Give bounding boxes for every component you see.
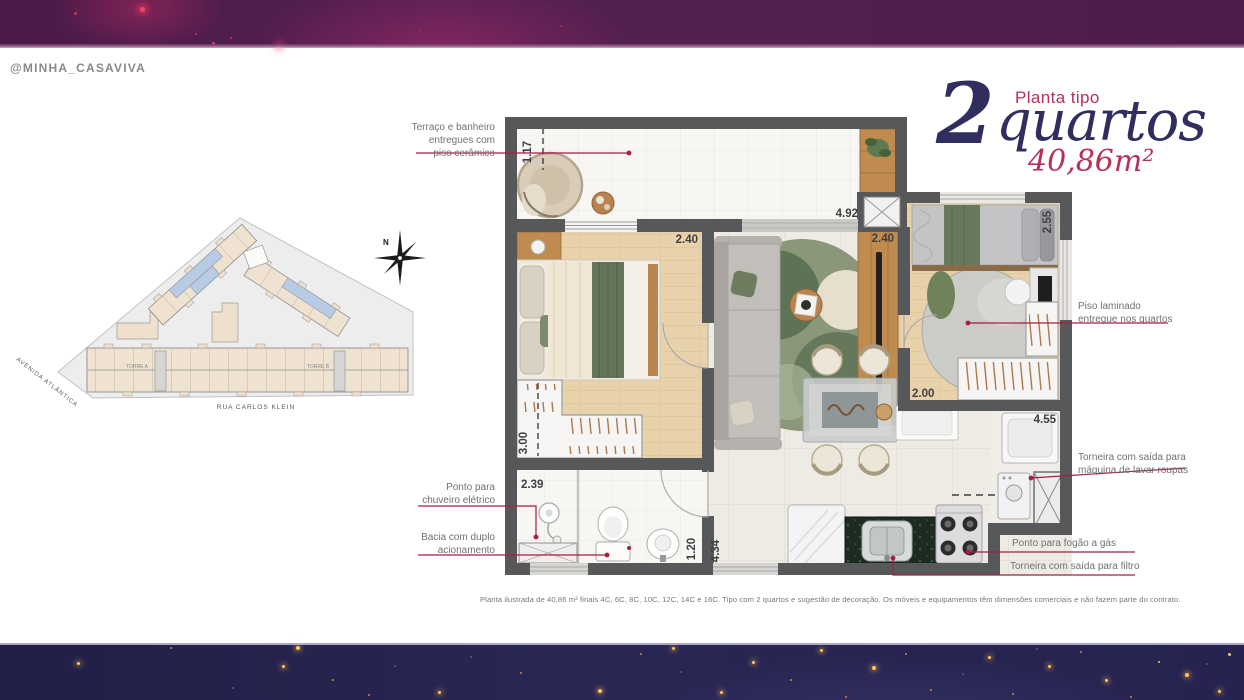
sofa (714, 236, 782, 450)
star-icon (1185, 673, 1189, 677)
dim-service: 4.55 (1034, 414, 1057, 426)
star-icon (820, 649, 823, 652)
sparkle-icon (195, 33, 197, 35)
star-icon (282, 665, 285, 668)
dining-chair (812, 345, 842, 375)
bedroom1-floor (507, 223, 707, 463)
disclaimer-text: Planta ilustrada de 40,86 m² finais 4C, … (480, 595, 1080, 604)
instagram-handle: @MINHA_CASAVIVA (10, 61, 146, 75)
dim-bedroom2-width: 2.00 (912, 388, 934, 400)
shaft (1034, 472, 1063, 528)
page: { "brand": { "handle": "@MINHA_CASAVIVA"… (0, 0, 1244, 700)
star-icon (1158, 661, 1160, 663)
rug-living (716, 239, 888, 431)
star-icon (1130, 696, 1132, 698)
footer-band (0, 643, 1244, 700)
bathroom (519, 470, 679, 563)
callout-toilet: Bacia com duplo acionamento (345, 531, 495, 557)
sparkle-icon (140, 7, 145, 12)
star-icon (170, 647, 172, 649)
windows (530, 192, 1072, 575)
living-kitchen-floor (705, 223, 1072, 575)
site-boundary (58, 218, 413, 398)
bedroom-1 (517, 232, 660, 458)
star-icon (332, 679, 334, 681)
star-icon (1228, 653, 1231, 656)
callout-stove: Ponto para fogão a gás (1012, 537, 1192, 550)
coffee-table (790, 289, 822, 321)
bedroom-2 (912, 205, 1058, 400)
header-band (0, 0, 1244, 48)
street-label-bottom: RUA CARLOS KLEIN (217, 404, 296, 411)
callout-laminate: Piso laminado entregue nos quartos (1078, 300, 1218, 326)
fridge (788, 505, 845, 565)
star-icon (752, 661, 755, 664)
star-icon (790, 679, 792, 681)
star-icon (672, 647, 675, 650)
desk-chair (1005, 279, 1031, 305)
compass-north-label: N (383, 238, 389, 247)
bedroom2-floor (898, 195, 1072, 405)
leader-lines (416, 153, 1186, 575)
star-icon (640, 653, 642, 655)
plant-icon (865, 138, 891, 157)
sparkle-icon (560, 25, 562, 27)
dining-table (803, 378, 897, 442)
desk (1005, 268, 1058, 320)
closet-bedroom1 (517, 380, 642, 458)
dim-bedroom1: 2.40 (676, 234, 698, 246)
star-icon (598, 689, 602, 693)
callout-filter: Torneira com saída para filtro (1010, 560, 1190, 573)
dim-bedroom2-depth: 2.55 (1042, 210, 1054, 233)
star-icon (1048, 665, 1051, 668)
site-plan: TORRE A TORRE B RUA CARLOS KLEIN AVENIDA… (15, 218, 426, 411)
washing-machine (998, 473, 1030, 519)
star-icon (368, 694, 370, 696)
dining-chair (859, 345, 889, 375)
star-icon (720, 691, 723, 694)
dim-bathroom: 2.39 (521, 479, 543, 491)
service-area (998, 413, 1063, 528)
dim-closet: 3.00 (518, 432, 530, 454)
tower-connector (244, 245, 269, 269)
star-icon (680, 671, 682, 673)
terrace (518, 128, 614, 217)
sparkle-icon (74, 12, 77, 15)
dim-hall: 1.20 (686, 538, 698, 560)
sink-icon (647, 529, 679, 562)
single-bed (912, 205, 1058, 271)
entry-shaft (864, 197, 900, 227)
sparkle-icon (230, 37, 232, 39)
star-icon (520, 672, 522, 674)
dining-chair (859, 445, 889, 475)
star-icon (845, 696, 847, 698)
star-icon (872, 666, 876, 670)
building-long: TORRE A TORRE B (87, 344, 408, 396)
dining-area (803, 345, 897, 475)
star-icon (1218, 690, 1221, 693)
sparkle-icon (212, 42, 215, 45)
doors (661, 315, 937, 517)
side-table (592, 192, 614, 214)
tower-b-label: TORRE B (307, 364, 330, 370)
street-label-left: AVENIDA ATLÂNTICA (15, 356, 80, 409)
counter-granite (845, 517, 940, 565)
terrace-floor (505, 117, 907, 229)
sparkle-icon (277, 44, 281, 48)
dim-living-length: 4.92 (836, 208, 858, 220)
service-floor (990, 405, 1072, 530)
compass-icon: N (374, 230, 426, 286)
dining-chair (812, 445, 842, 475)
star-icon (988, 656, 991, 659)
laundry-tank (1002, 413, 1058, 463)
lounge-chair (518, 153, 582, 217)
tower-bar-left (146, 221, 260, 328)
star-icon (930, 689, 932, 691)
star-icon (470, 656, 472, 658)
shower-icon (539, 503, 561, 544)
dim-kitchen: 4.34 (710, 539, 722, 562)
leader-dots (534, 151, 1034, 561)
wardrobe-bedroom2 (958, 302, 1058, 400)
nightstand (517, 232, 561, 262)
star-icon (962, 673, 964, 675)
star-icon (77, 662, 80, 665)
title-area: 40,86m² (1028, 147, 1154, 177)
monitor-icon (1038, 276, 1052, 310)
toilet-icon (596, 507, 631, 561)
star-icon (296, 646, 300, 650)
lamp-icon (531, 240, 545, 254)
sparkle-icon (418, 30, 420, 32)
amenity-block (212, 303, 238, 342)
tv-panel (858, 229, 898, 425)
shower-tray (519, 543, 577, 563)
star-icon (394, 665, 396, 667)
gas-stove (936, 505, 982, 563)
title-word: quartos (996, 94, 1206, 150)
title-number: 2 (936, 72, 994, 156)
callout-terrace: Terraço e banheiro entregues com piso ce… (355, 121, 495, 160)
kitchen (788, 406, 996, 565)
tv-icon (876, 252, 882, 392)
counter-white (896, 406, 958, 440)
dim-living-width: 2.40 (872, 233, 894, 245)
kitchen-sink (862, 521, 912, 561)
plan-title: Planta tipo 2 quartos 40,86m² (930, 86, 1180, 186)
rug-bedroom2 (922, 268, 1038, 396)
star-icon (1080, 651, 1082, 653)
tower-bar-right (242, 254, 352, 340)
entry-cabinet (860, 129, 897, 195)
star-icon (1105, 679, 1108, 682)
tower-a-label: TORRE A (126, 364, 149, 370)
callout-shower: Ponto para chuveiro elétrico (355, 481, 495, 507)
star-icon (438, 691, 441, 694)
dimension-labels: 1.17 4.92 2.40 2.40 2.55 2.00 4.55 3.00 … (518, 141, 1057, 562)
double-bed (517, 260, 660, 380)
bathroom-floor (507, 460, 707, 572)
callout-washer: Torneira com saída para máquina de lavar… (1078, 451, 1218, 477)
star-icon (1012, 693, 1014, 695)
dim-terrace: 1.17 (522, 141, 534, 163)
amenity-block (117, 312, 158, 339)
star-icon (232, 687, 234, 689)
living-room (714, 229, 898, 450)
star-icon (1206, 663, 1208, 665)
star-icon (1036, 648, 1038, 650)
star-icon (905, 653, 907, 655)
